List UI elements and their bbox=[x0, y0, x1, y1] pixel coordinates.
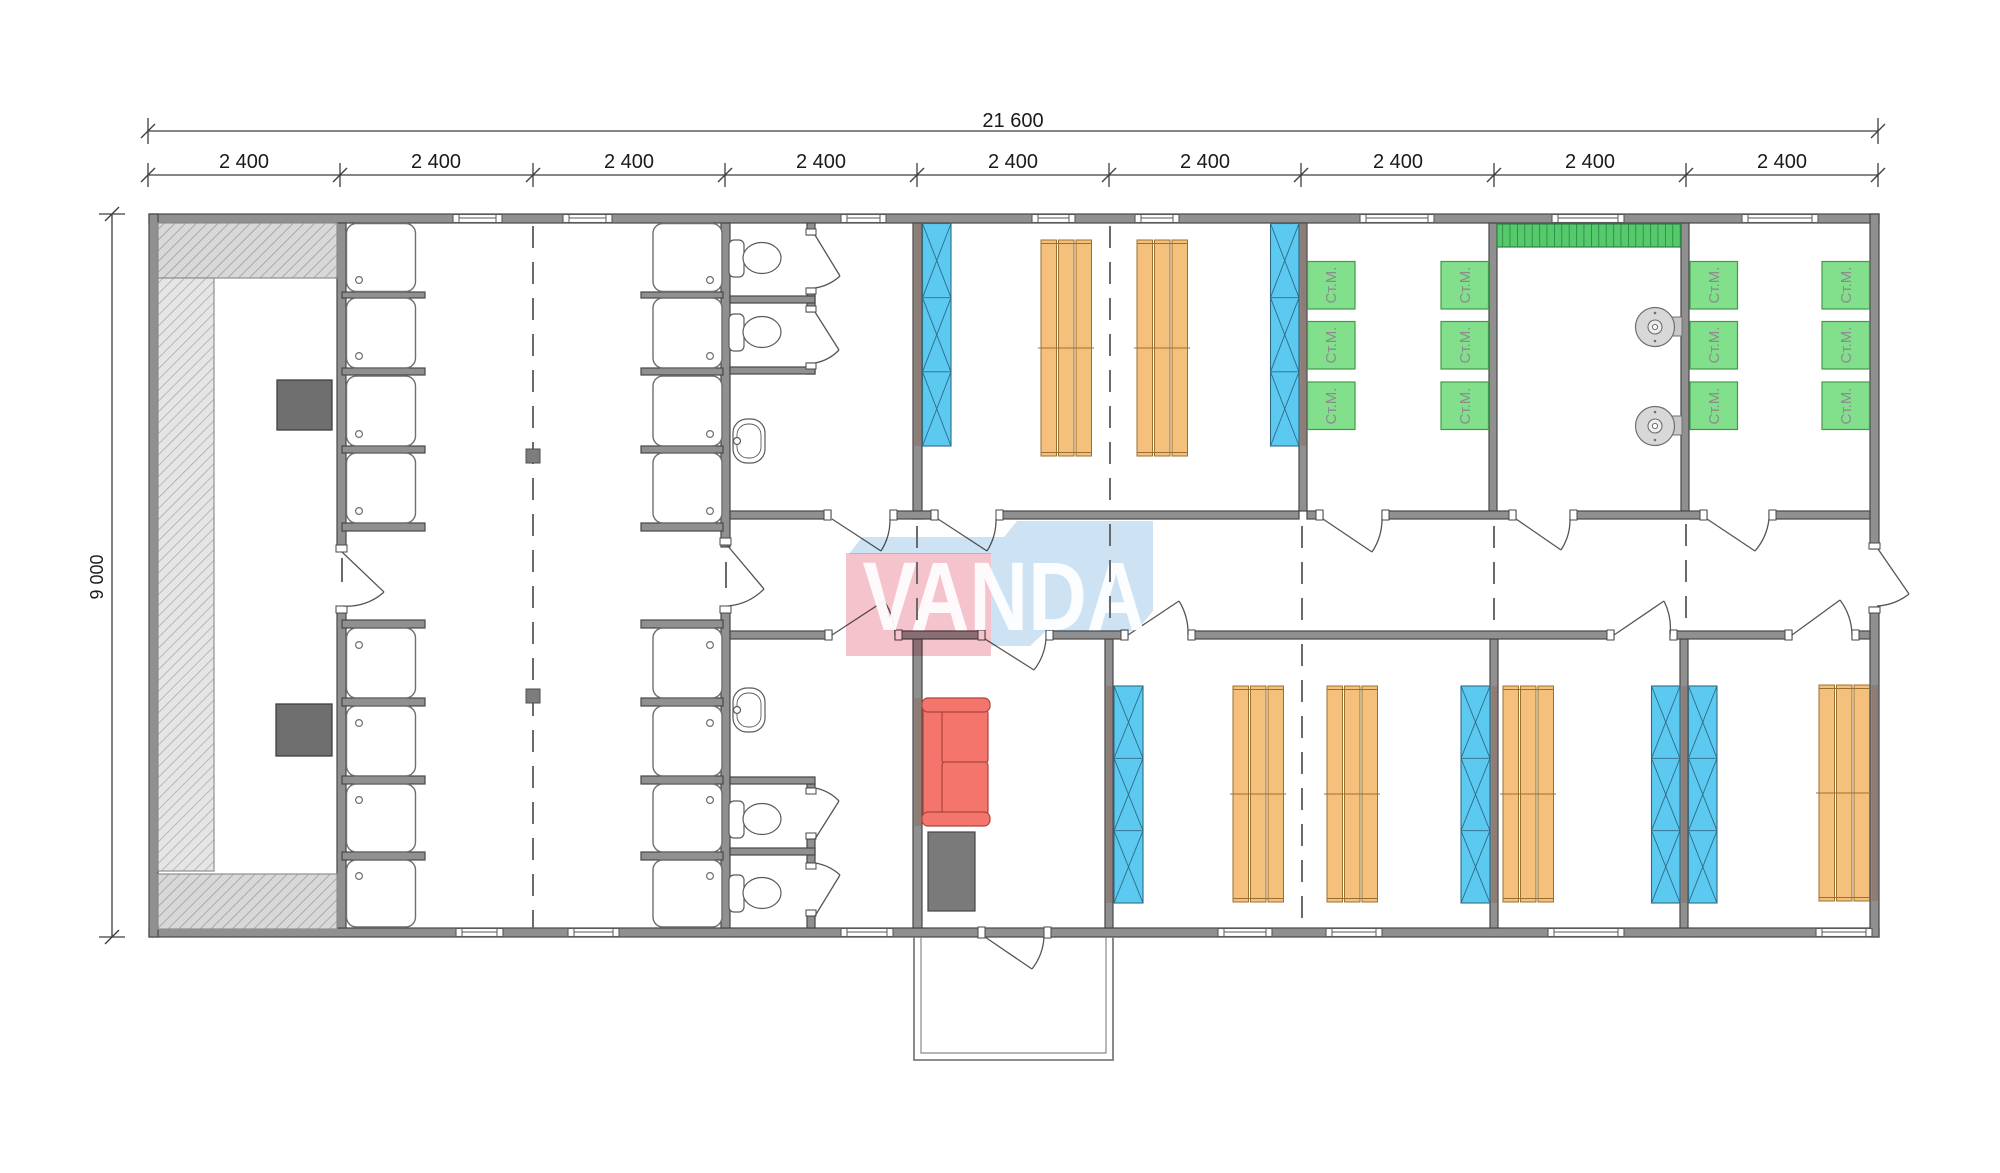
svg-text:Ст.М.: Ст.М. bbox=[1838, 327, 1855, 364]
svg-text:Ст.М.: Ст.М. bbox=[1706, 388, 1723, 425]
svg-text:21 600: 21 600 bbox=[982, 110, 1043, 132]
svg-text:2 400: 2 400 bbox=[1565, 151, 1615, 173]
svg-text:Ст.М.: Ст.М. bbox=[1706, 267, 1723, 304]
svg-text:Ст.М.: Ст.М. bbox=[1323, 388, 1340, 425]
svg-text:Ст.М.: Ст.М. bbox=[1838, 388, 1855, 425]
svg-text:Ст.М.: Ст.М. bbox=[1323, 267, 1340, 304]
svg-text:2 400: 2 400 bbox=[411, 151, 461, 173]
svg-text:Ст.М.: Ст.М. bbox=[1457, 267, 1474, 304]
svg-text:Ст.М.: Ст.М. bbox=[1457, 388, 1474, 425]
svg-text:2 400: 2 400 bbox=[219, 151, 269, 173]
svg-text:Ст.М.: Ст.М. bbox=[1457, 327, 1474, 364]
svg-text:Ст.М.: Ст.М. bbox=[1323, 327, 1340, 364]
svg-text:2 400: 2 400 bbox=[796, 151, 846, 173]
svg-text:VANDA: VANDA bbox=[863, 542, 1146, 651]
svg-text:2 400: 2 400 bbox=[1180, 151, 1230, 173]
svg-text:2 400: 2 400 bbox=[988, 151, 1038, 173]
svg-text:9 000: 9 000 bbox=[87, 554, 107, 599]
svg-text:Ст.М.: Ст.М. bbox=[1838, 267, 1855, 304]
svg-text:Ст.М.: Ст.М. bbox=[1706, 327, 1723, 364]
svg-text:2 400: 2 400 bbox=[604, 151, 654, 173]
svg-text:2 400: 2 400 bbox=[1757, 151, 1807, 173]
svg-text:2 400: 2 400 bbox=[1373, 151, 1423, 173]
